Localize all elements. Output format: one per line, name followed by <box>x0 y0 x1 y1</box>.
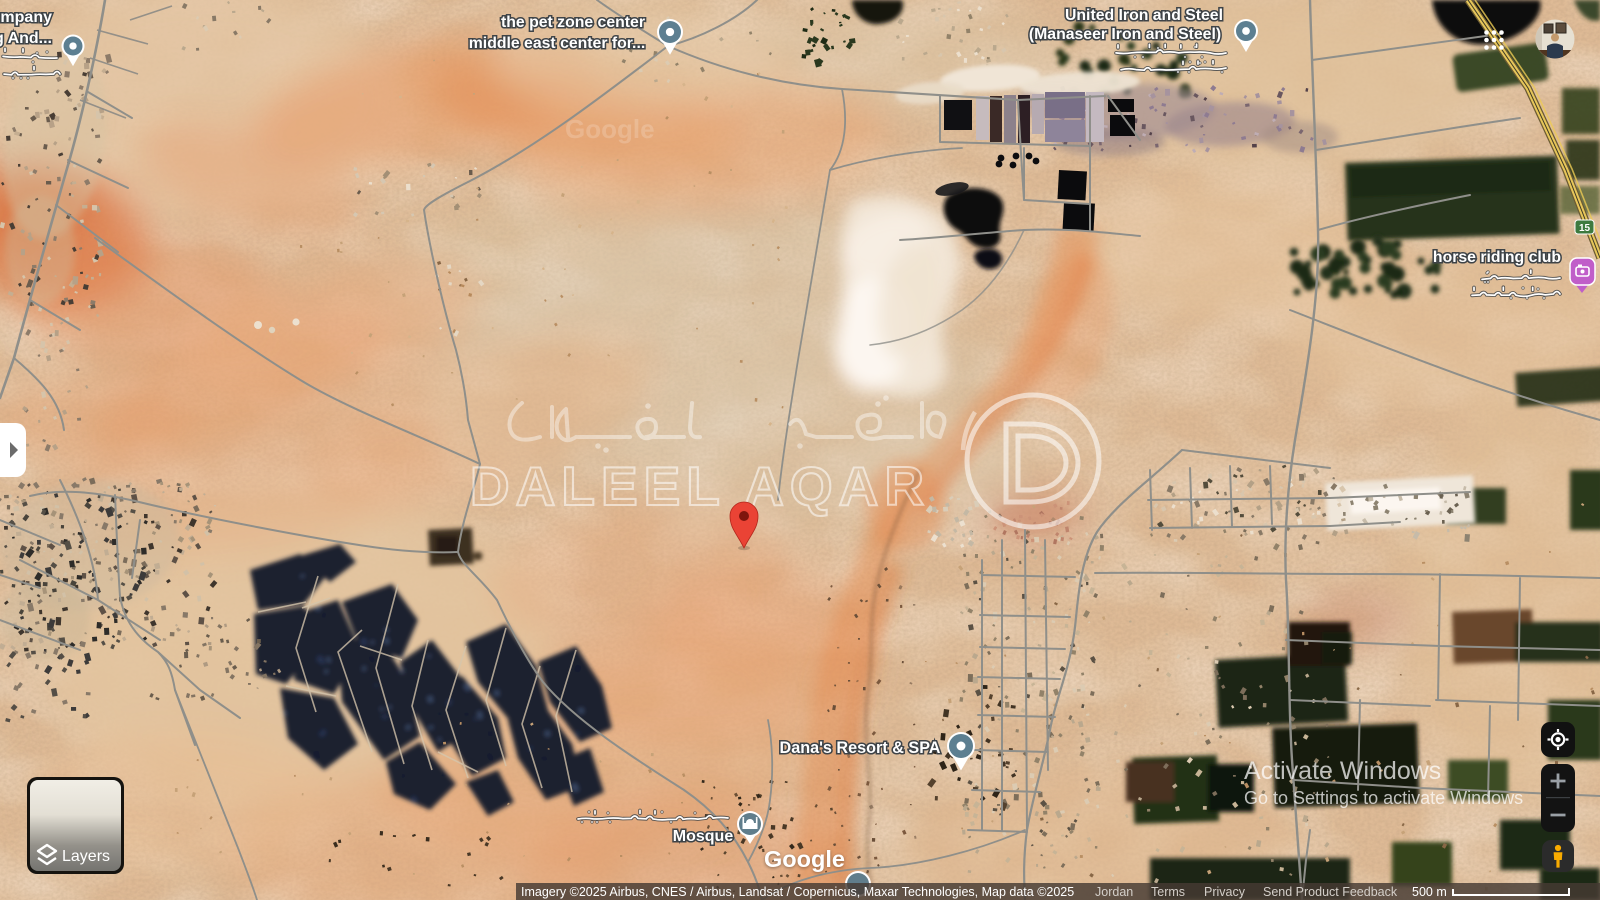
svg-text:Dana's Resort & SPA: Dana's Resort & SPA <box>780 739 941 757</box>
svg-text:g And...: g And... <box>0 30 52 47</box>
svg-text:mpany: mpany <box>0 9 52 26</box>
svg-text:Imagery ©2025 Airbus, CNES / A: Imagery ©2025 Airbus, CNES / Airbus, Lan… <box>521 885 1074 899</box>
svg-text:middle east center for...: middle east center for... <box>469 35 645 52</box>
svg-text:Activate Windows: Activate Windows <box>1244 757 1441 785</box>
svg-text:the pet zone center: the pet zone center <box>501 14 645 31</box>
svg-text:500 m: 500 m <box>1412 885 1447 899</box>
svg-text:United Iron and Steel: United Iron and Steel <box>1065 7 1223 24</box>
svg-text:Terms: Terms <box>1151 885 1185 899</box>
svg-text:Google: Google <box>565 114 655 144</box>
svg-text:Send Product Feedback: Send Product Feedback <box>1263 885 1398 899</box>
svg-text:Google: Google <box>764 846 845 872</box>
svg-text:Mosque: Mosque <box>673 828 734 845</box>
svg-text:(Manaseer Iron and Steel): (Manaseer Iron and Steel) <box>1029 26 1221 43</box>
svg-text:horse riding club: horse riding club <box>1433 249 1561 266</box>
svg-text:Jordan: Jordan <box>1095 885 1133 899</box>
svg-text:Privacy: Privacy <box>1204 885 1246 899</box>
svg-text:DALEEL AQAR: DALEEL AQAR <box>470 455 930 517</box>
svg-text:Go to Settings to activate Win: Go to Settings to activate Windows <box>1244 788 1523 808</box>
svg-text:15: 15 <box>1579 223 1591 234</box>
svg-text:Layers: Layers <box>62 848 110 865</box>
